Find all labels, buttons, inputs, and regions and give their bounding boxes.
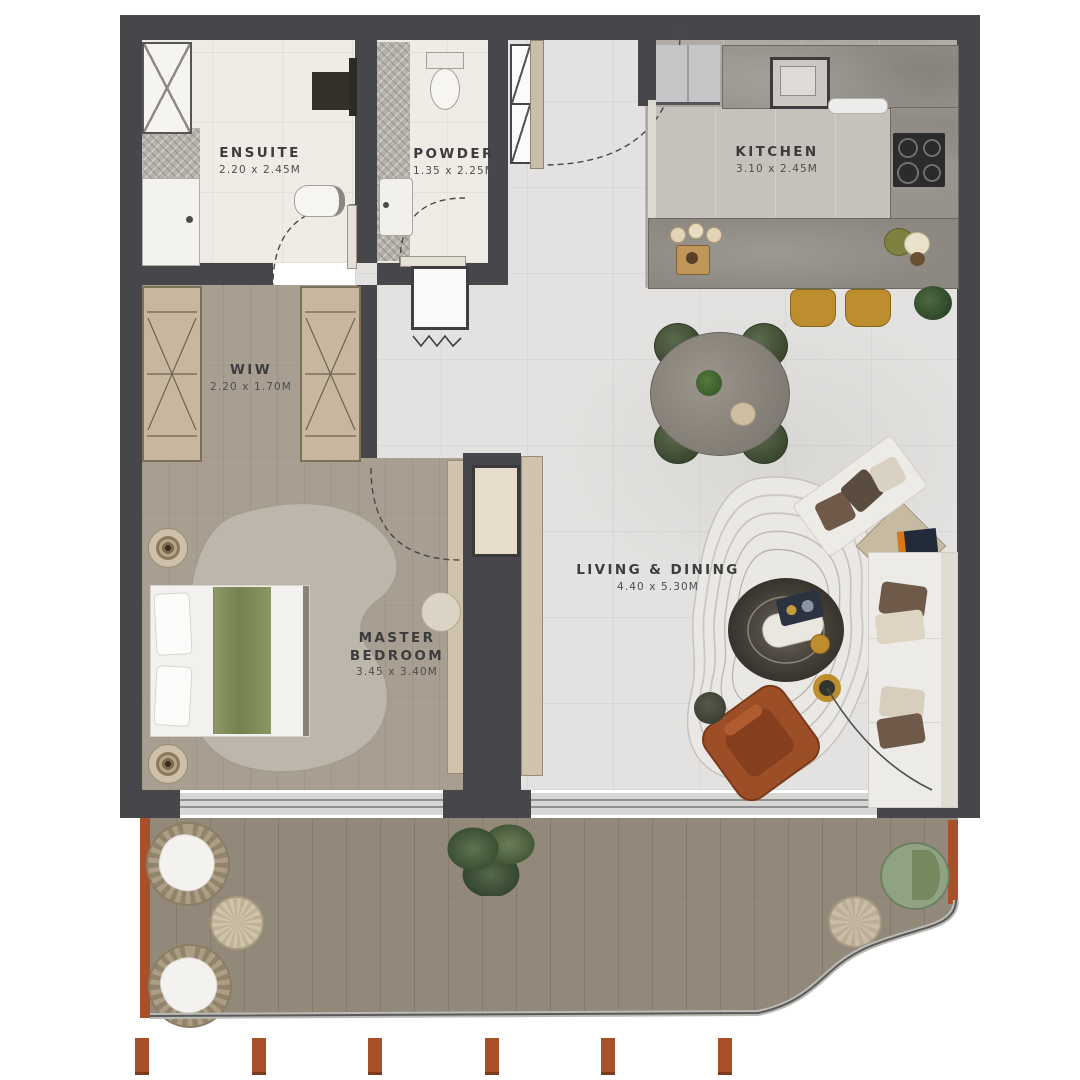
ottoman — [421, 592, 461, 632]
board-item — [686, 252, 698, 264]
table-lamp-icon — [156, 752, 180, 776]
railing-post — [601, 1038, 615, 1075]
ensuite-wall-unit — [312, 72, 354, 110]
chair-cushion — [152, 828, 223, 899]
wall-below-ensuite — [142, 263, 273, 285]
railing-post — [485, 1038, 499, 1075]
wall-kitchen-stub — [638, 40, 656, 106]
sliding-glass-door-left — [180, 793, 443, 815]
balcony-plant-icon — [446, 820, 536, 896]
food-platter — [910, 252, 925, 266]
table-lamp-icon — [156, 536, 180, 560]
nightstand — [148, 528, 188, 568]
table-cup — [722, 360, 736, 374]
wardrobe-right — [300, 286, 361, 462]
wall-bottom-left — [120, 790, 180, 818]
counter-dish — [828, 98, 888, 114]
railing-post — [252, 1038, 266, 1075]
powder-faucet-icon — [383, 202, 389, 208]
wall-top — [120, 15, 980, 40]
shower-icon — [142, 42, 192, 134]
armchair-seat — [722, 705, 798, 780]
gold-bowl — [810, 634, 830, 654]
room-label-kitchen: KITCHEN 3.10 x 2.45M — [735, 144, 818, 175]
hall-closet — [411, 266, 469, 330]
island-end-panel — [648, 100, 656, 218]
powder-toilet-tank — [426, 52, 464, 69]
powder-toilet-icon — [430, 68, 460, 110]
fridge-icon — [656, 45, 720, 105]
pillow — [874, 609, 925, 645]
room-label-wiw: WIW 2.20 x 1.70M — [210, 362, 292, 393]
chair-cushion — [153, 949, 226, 1022]
bed — [150, 585, 310, 737]
table-plate — [730, 402, 756, 426]
room-label-ensuite: ENSUITE 2.20 x 2.45M — [219, 145, 301, 176]
room-label-powder: POWDER 1.35 x 2.25M — [413, 146, 495, 177]
wall-right — [957, 15, 980, 818]
media-wall-cabinet — [472, 465, 520, 557]
lounger-green — [880, 842, 950, 910]
ensuite-door-leaf — [347, 205, 357, 269]
wall-left — [120, 15, 142, 818]
outdoor-side-table — [210, 896, 264, 950]
bed-pillow — [153, 592, 192, 656]
ensuite-faucet-icon — [186, 216, 193, 223]
cooktop-icon — [893, 133, 945, 187]
bed-footboard — [303, 586, 309, 736]
railing-post — [368, 1038, 382, 1075]
media-wall-wood-right — [521, 456, 543, 776]
ensuite-toilet-icon — [294, 185, 345, 217]
arc-floor-lamp-icon — [813, 674, 841, 702]
outdoor-chair — [146, 822, 230, 906]
plant-icon — [914, 286, 952, 320]
railing-post — [718, 1038, 732, 1075]
balcony-edge-right — [948, 820, 958, 904]
railing-post — [135, 1038, 149, 1075]
outdoor-pouf — [828, 896, 882, 948]
bar-stool — [790, 289, 836, 327]
entry-door-leaf — [530, 40, 544, 169]
lounger-fold — [912, 850, 940, 900]
island-bowl — [670, 227, 686, 243]
table-plant-icon — [696, 370, 722, 396]
dining-table — [650, 332, 790, 456]
entry-cabinet-upper — [510, 44, 532, 105]
floor-plan: ENSUITE 2.20 x 2.45M POWDER 1.35 x 2.25M… — [0, 0, 1080, 1080]
sink-basin — [780, 66, 816, 96]
island-bowl — [688, 223, 704, 239]
nightstand — [148, 744, 188, 784]
outdoor-chair — [148, 944, 232, 1028]
bar-stool — [845, 289, 891, 327]
sliding-glass-door-right — [531, 793, 877, 815]
wardrobe-left — [142, 286, 202, 462]
entry-cabinet-lower — [510, 103, 532, 164]
plant-pot-icon — [694, 692, 726, 724]
bed-throw — [213, 587, 271, 734]
bed-pillow — [153, 665, 192, 727]
ensuite-towel-rail — [349, 58, 357, 116]
room-label-master-bedroom: MASTER BEDROOM 3.45 x 3.40M — [336, 630, 458, 678]
wall-ensuite-powder — [355, 40, 377, 263]
island-bowl — [706, 227, 722, 243]
room-label-living-dining: LIVING & DINING 4.40 x 5.30M — [576, 562, 740, 593]
